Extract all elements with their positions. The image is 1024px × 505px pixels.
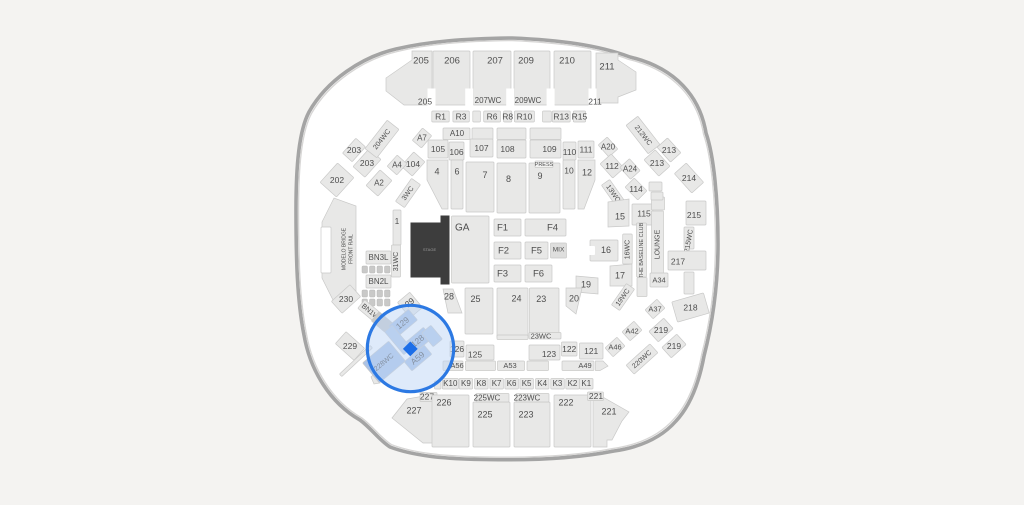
- svg-text:MIX: MIX: [553, 247, 565, 254]
- svg-text:115: 115: [637, 208, 651, 218]
- svg-text:16: 16: [601, 245, 611, 255]
- svg-text:8: 8: [506, 174, 511, 184]
- svg-text:R6: R6: [487, 111, 498, 121]
- svg-text:STAGE: STAGE: [423, 247, 437, 252]
- svg-text:F5: F5: [531, 246, 542, 257]
- svg-text:A37: A37: [648, 304, 661, 313]
- svg-text:207WC: 207WC: [475, 96, 502, 105]
- svg-text:19: 19: [581, 279, 591, 289]
- svg-text:217: 217: [671, 256, 685, 266]
- svg-text:A42: A42: [625, 326, 638, 335]
- svg-text:110: 110: [563, 147, 577, 157]
- svg-text:227: 227: [406, 405, 421, 415]
- svg-text:6: 6: [454, 166, 459, 176]
- svg-text:222: 222: [558, 397, 573, 407]
- svg-text:221: 221: [589, 391, 603, 401]
- svg-text:226: 226: [436, 397, 451, 407]
- svg-text:203: 203: [347, 145, 361, 155]
- svg-text:20: 20: [569, 293, 579, 303]
- svg-text:F4: F4: [547, 223, 558, 234]
- svg-text:K4: K4: [537, 379, 547, 388]
- svg-text:R13: R13: [553, 111, 569, 121]
- svg-text:28: 28: [444, 291, 454, 301]
- svg-text:125: 125: [468, 349, 482, 359]
- svg-text:PRESS: PRESS: [535, 162, 554, 168]
- svg-text:16WC: 16WC: [624, 240, 631, 259]
- svg-text:K10: K10: [443, 379, 458, 388]
- svg-text:K5: K5: [522, 379, 532, 388]
- svg-text:25: 25: [470, 294, 480, 304]
- svg-text:219: 219: [654, 325, 668, 335]
- svg-text:114: 114: [629, 184, 643, 194]
- svg-text:31WC: 31WC: [393, 252, 400, 271]
- svg-text:12: 12: [582, 167, 592, 177]
- svg-text:109: 109: [542, 144, 556, 154]
- svg-text:F1: F1: [497, 223, 508, 234]
- svg-text:225WC: 225WC: [474, 394, 501, 403]
- svg-text:BN3L: BN3L: [368, 253, 389, 262]
- svg-text:R10: R10: [517, 111, 533, 121]
- svg-text:THE BASELINE CLUB: THE BASELINE CLUB: [639, 222, 645, 278]
- svg-text:A4: A4: [392, 161, 402, 170]
- svg-text:F2: F2: [498, 246, 509, 257]
- svg-text:K2: K2: [568, 379, 578, 388]
- svg-text:111: 111: [580, 144, 593, 154]
- svg-text:A2: A2: [374, 179, 384, 188]
- svg-text:10: 10: [564, 165, 574, 175]
- svg-text:K6: K6: [507, 379, 517, 388]
- svg-text:R8: R8: [502, 111, 513, 121]
- svg-text:105: 105: [431, 144, 445, 154]
- svg-text:4: 4: [434, 166, 439, 176]
- svg-text:K3: K3: [553, 379, 563, 388]
- svg-text:202: 202: [330, 175, 344, 185]
- svg-text:R3: R3: [456, 111, 467, 121]
- svg-text:R15: R15: [572, 111, 588, 121]
- svg-text:123: 123: [542, 349, 556, 359]
- svg-text:K1: K1: [581, 379, 591, 388]
- svg-text:221: 221: [601, 406, 616, 416]
- svg-text:209: 209: [518, 56, 534, 67]
- svg-text:112: 112: [605, 161, 619, 171]
- svg-text:A49: A49: [578, 361, 591, 370]
- svg-text:A20: A20: [601, 143, 616, 152]
- svg-text:A24: A24: [623, 165, 638, 174]
- svg-text:K8: K8: [476, 379, 486, 388]
- svg-text:LOUNGE: LOUNGE: [654, 229, 661, 259]
- svg-text:MODELO BRIDGE: MODELO BRIDGE: [341, 227, 347, 270]
- svg-text:205: 205: [413, 56, 429, 67]
- svg-text:FRONT RAIL: FRONT RAIL: [348, 234, 354, 264]
- svg-text:GA: GA: [455, 223, 470, 234]
- svg-text:223WC: 223WC: [514, 394, 541, 403]
- svg-text:17: 17: [615, 270, 625, 280]
- svg-text:A34: A34: [652, 275, 665, 284]
- svg-text:218: 218: [683, 302, 697, 312]
- svg-text:R1: R1: [435, 111, 446, 121]
- svg-text:229: 229: [343, 341, 357, 351]
- svg-text:215: 215: [687, 210, 701, 220]
- svg-text:7: 7: [482, 170, 487, 180]
- svg-text:K7: K7: [492, 379, 502, 388]
- svg-text:23: 23: [536, 294, 546, 304]
- svg-text:104: 104: [406, 159, 420, 169]
- svg-text:214: 214: [682, 173, 696, 183]
- svg-text:223: 223: [518, 409, 533, 419]
- svg-text:106: 106: [449, 147, 463, 157]
- svg-text:213: 213: [662, 145, 676, 155]
- svg-text:210: 210: [559, 56, 575, 67]
- svg-text:A46: A46: [608, 342, 621, 351]
- svg-text:108: 108: [500, 144, 514, 154]
- svg-text:A10: A10: [450, 129, 465, 138]
- svg-text:122: 122: [562, 344, 576, 354]
- svg-text:205: 205: [418, 96, 432, 106]
- svg-text:213: 213: [650, 158, 664, 168]
- svg-text:107: 107: [474, 143, 488, 153]
- svg-text:207: 207: [487, 56, 503, 67]
- svg-text:F3: F3: [497, 269, 508, 280]
- svg-text:225: 225: [477, 409, 492, 419]
- svg-text:206: 206: [444, 56, 460, 67]
- svg-text:203: 203: [360, 158, 374, 168]
- svg-text:121: 121: [584, 346, 598, 356]
- svg-text:1: 1: [395, 217, 400, 226]
- svg-text:211: 211: [599, 62, 614, 73]
- svg-text:23WC: 23WC: [531, 331, 552, 340]
- svg-text:211: 211: [588, 96, 602, 106]
- svg-text:A7: A7: [417, 134, 427, 143]
- svg-text:F6: F6: [533, 269, 544, 280]
- svg-text:15: 15: [615, 211, 625, 221]
- svg-text:K9: K9: [461, 379, 471, 388]
- svg-text:230: 230: [339, 294, 353, 304]
- svg-text:24: 24: [511, 293, 521, 303]
- svg-text:9: 9: [537, 171, 542, 181]
- svg-text:A53: A53: [503, 361, 516, 370]
- svg-text:219: 219: [667, 341, 681, 351]
- svg-text:BN2L: BN2L: [368, 277, 389, 286]
- svg-text:209WC: 209WC: [515, 96, 542, 105]
